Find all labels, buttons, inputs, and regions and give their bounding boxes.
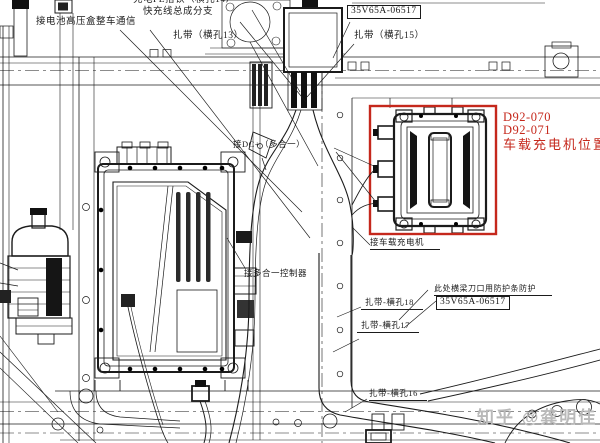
pump-unit (0, 208, 72, 344)
right-bracket (545, 42, 578, 77)
label-cable-tie-17: 扎带-横孔17 (357, 320, 419, 333)
label-cable-tie-18: 扎带-横孔18 (361, 297, 423, 310)
label-beam-protection: 此处横梁刀口用防护条防护 (434, 283, 552, 296)
highlight-code-2: D92-071 (503, 124, 551, 137)
label-dc-plus: 接DC+（多合一） (233, 139, 305, 150)
label-fast-charge-branch: 快充线总成分支 (143, 7, 213, 18)
label-part-number-top: 35V65A-06517 (347, 5, 421, 19)
cad-drawing-canvas: 充电PE搭铁（横孔14） 快充线总成分支 接电池高压盒整车通信 扎带（横孔13）… (0, 0, 600, 443)
chassis-line-art (0, 0, 600, 443)
cooling-slots (176, 192, 211, 282)
controller-bolts (99, 166, 225, 372)
label-battery-comm: 接电池高压盒整车通信 (36, 17, 136, 28)
charger-unit (373, 107, 486, 233)
label-controller: 接多合一控制器 (244, 268, 307, 279)
label-charger-connect: 接车载充电机 (370, 237, 440, 250)
highlight-caption: 车载充电机位置 (503, 138, 600, 151)
charger-bolts (419, 114, 458, 226)
label-charge-pe-ground: 充电PE搭铁（横孔14） (133, 0, 236, 6)
label-part-number-mid: 35V65A-06517 (436, 296, 510, 310)
label-cable-tie-13: 扎带（横孔13） (173, 31, 244, 42)
controller-unit (95, 142, 256, 443)
label-cable-tie-16: 扎带-横孔16 (369, 388, 427, 401)
watermark: 知乎 @龚明佳 (477, 403, 597, 428)
label-cable-tie-15: 扎带（横孔15） (354, 31, 425, 42)
